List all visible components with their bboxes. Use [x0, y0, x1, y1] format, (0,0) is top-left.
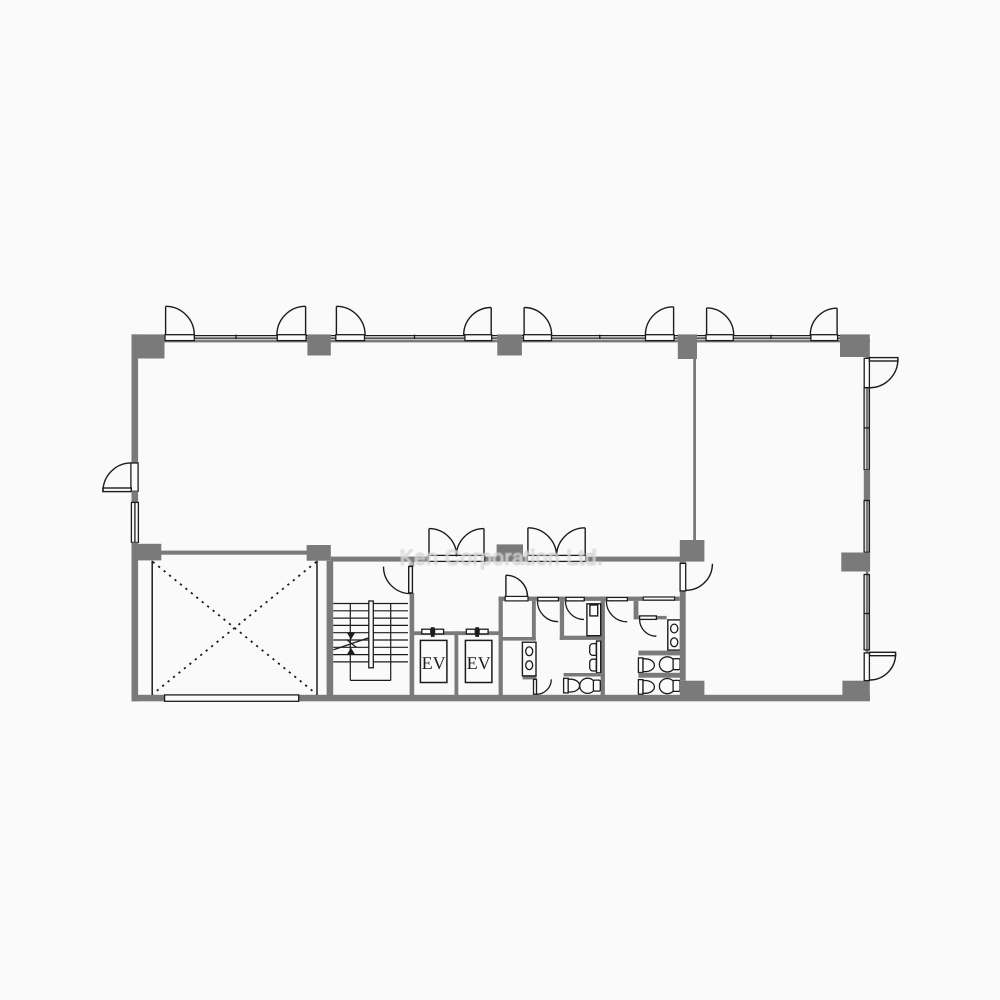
- svg-text:EV: EV: [422, 653, 446, 673]
- svg-text:Ken Corporation Ltd.: Ken Corporation Ltd.: [400, 547, 604, 570]
- svg-text:EV: EV: [467, 653, 491, 673]
